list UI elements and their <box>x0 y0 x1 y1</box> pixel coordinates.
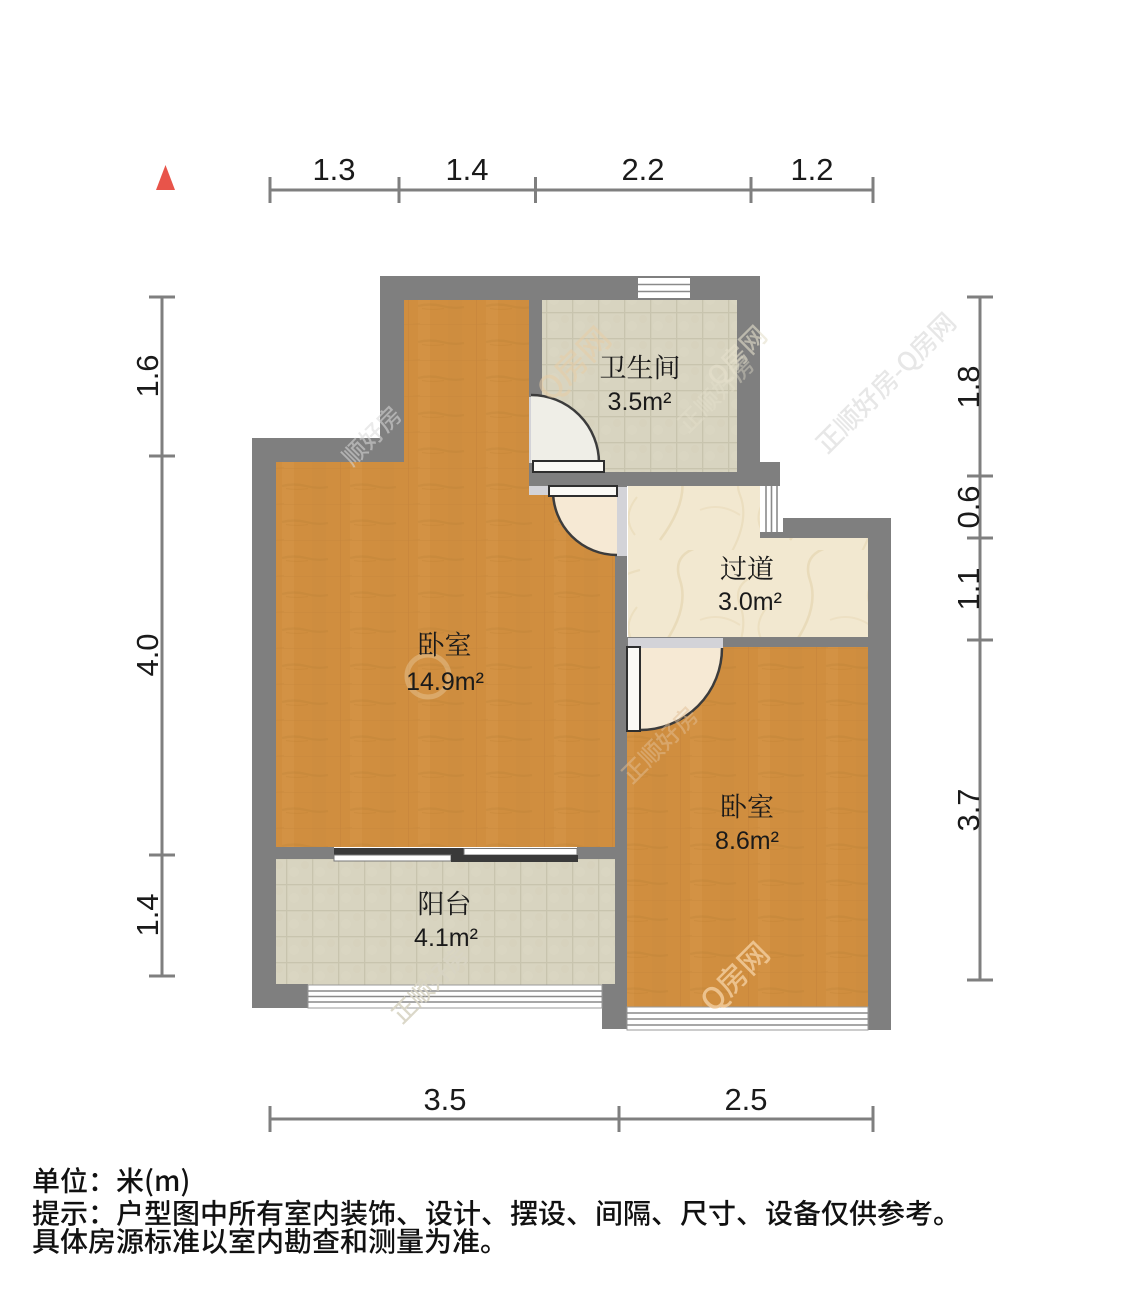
svg-text:8.6m²: 8.6m² <box>715 827 779 855</box>
svg-text:1.2: 1.2 <box>790 152 833 187</box>
svg-text:2.5: 2.5 <box>724 1082 767 1117</box>
svg-text:3.5: 3.5 <box>423 1082 466 1117</box>
svg-text:1.1: 1.1 <box>951 567 986 610</box>
svg-text:1.6: 1.6 <box>130 354 165 397</box>
svg-text:4.1m²: 4.1m² <box>414 924 478 952</box>
svg-text:1.4: 1.4 <box>445 152 488 187</box>
svg-text:3.5m²: 3.5m² <box>608 388 672 416</box>
svg-text:1.4: 1.4 <box>130 893 165 936</box>
svg-text:3.0m²: 3.0m² <box>718 588 782 616</box>
svg-text:1.3: 1.3 <box>312 152 355 187</box>
svg-text:0.6: 0.6 <box>951 485 986 528</box>
svg-text:14.9m²: 14.9m² <box>406 668 484 696</box>
svg-text:2.2: 2.2 <box>621 152 664 187</box>
svg-text:4.0: 4.0 <box>130 633 165 676</box>
svg-text:1.8: 1.8 <box>951 365 986 408</box>
svg-text:3.7: 3.7 <box>951 788 986 831</box>
